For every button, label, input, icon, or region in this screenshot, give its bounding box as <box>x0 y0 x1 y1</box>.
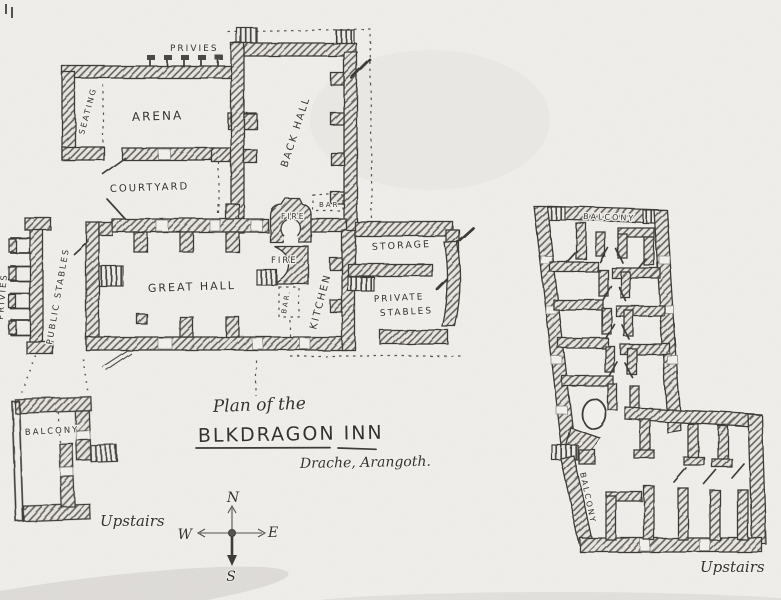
upstairs-large-caption: Upstairs <box>700 558 765 576</box>
title-line3: Drache, Arangoth. <box>299 454 431 472</box>
compass-s-label: S <box>226 569 236 585</box>
floorplan-page: PRIVIES SEATING ARENA BACK HALL COURTYAR… <box>0 0 781 600</box>
balcony-north-label: BALCONY <box>583 212 635 223</box>
fire-south-label: FIRE <box>271 256 298 266</box>
upstairs-small-caption: Upstairs <box>100 512 165 530</box>
compass-e-label: E <box>267 525 278 541</box>
compass-w-label: W <box>178 527 194 543</box>
arena-label: ARENA <box>132 108 184 124</box>
fire-north-label: FIRE <box>281 212 305 221</box>
compass-n-label: N <box>226 490 240 506</box>
privies-top-label: PRIVIES <box>170 44 219 54</box>
title-line2: BLKDRAGON INN <box>198 422 384 447</box>
bar-back-label: BAR <box>319 201 339 209</box>
floorplan-canvas: PRIVIES SEATING ARENA BACK HALL COURTYAR… <box>0 0 781 600</box>
title-line1: Plan of the <box>211 394 306 417</box>
